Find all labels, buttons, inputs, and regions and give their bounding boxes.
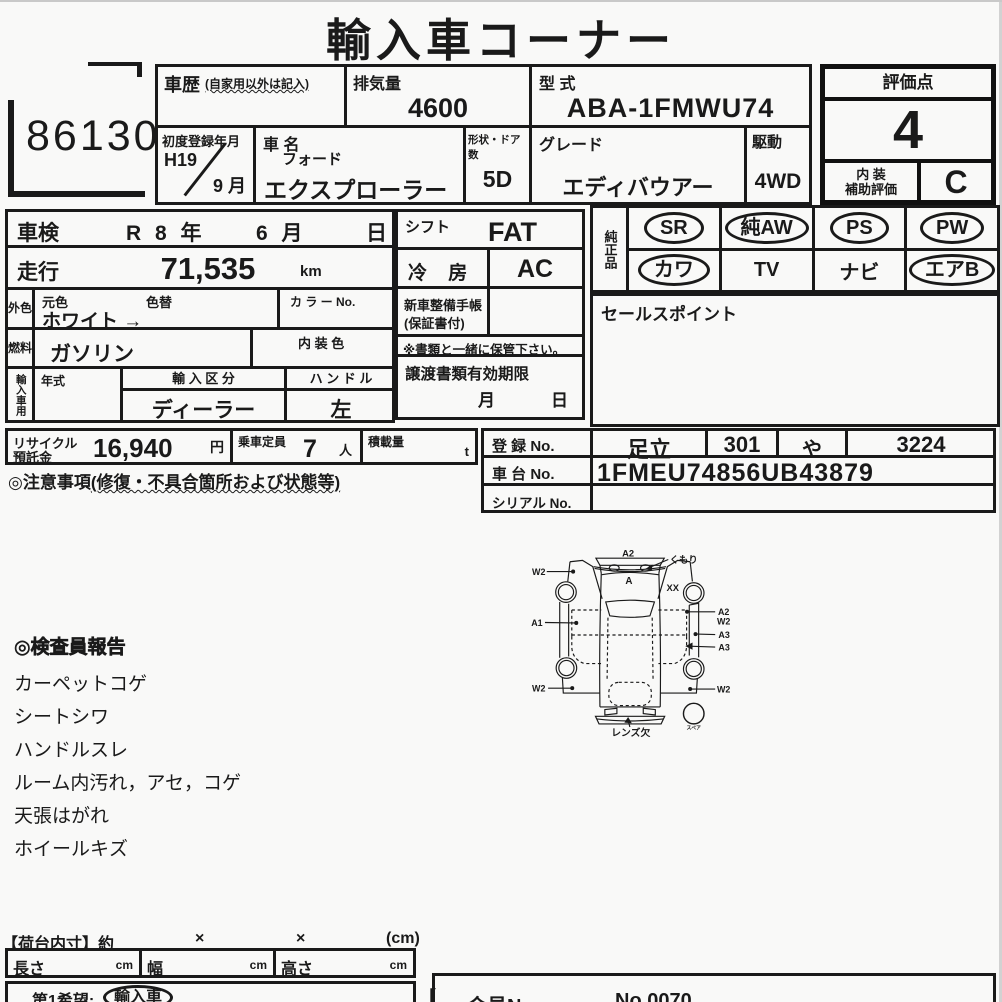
diagram-label-w2-right-top: W2 [717, 616, 730, 626]
doors-cell: 形状・ドア数 5D [463, 125, 532, 205]
service-book-label-1: 新車整備手帳 [404, 295, 482, 314]
history-cell: 車歴 (自家用以外は記入) [155, 64, 347, 128]
auction-sheet: 輸入車コーナー 86130 車歴 (自家用以外は記入) 排気量 4600 型 式… [0, 0, 1002, 1002]
height-cell: 高さ cm [273, 948, 416, 978]
shaken-month: 6 月 [256, 217, 307, 247]
doors-label: 形状・ドア数 [468, 132, 529, 162]
transfer-day: 日 [551, 386, 568, 411]
interior-rating-row: 内 装 補助評価 C [825, 159, 991, 201]
mileage-label: 走行 [17, 256, 59, 286]
equipment-group-label: 純正品 [593, 208, 626, 290]
first-choice-label: 第1希望: [32, 987, 94, 1002]
handle-value: 左 [287, 394, 395, 424]
capacity-value: 7 [303, 435, 317, 464]
bed-size-x2: × [296, 930, 305, 948]
caution-label: ◎注意事項 [8, 473, 91, 492]
ext-color-label: 外色 [8, 290, 35, 327]
import-row: 輸入車用 年式 輸 入 区 分 ディーラー ハ ン ド ル 左 [5, 366, 395, 423]
import-class-value: ディーラー [123, 394, 284, 424]
lot-corner-mark-top [88, 62, 142, 77]
drive-label: 駆動 [752, 131, 782, 152]
color-divider [277, 290, 280, 327]
chassis-label: 車 台 No. [492, 463, 555, 484]
fuel-row: 燃料 ガソリン 内 装 色 [5, 327, 395, 369]
history-note: (自家用以外は記入) [205, 75, 309, 92]
equipment-sr: SR [626, 208, 719, 248]
shaken-label: 車検 [17, 217, 59, 247]
model-code-value: ABA-1FMWU74 [532, 93, 809, 124]
length-cell: 長さ cm [5, 948, 142, 978]
serial-divider [590, 486, 593, 510]
inspector-heading: ◎検査員報告 [14, 632, 374, 659]
shift-label: シフト [405, 216, 450, 237]
diagram-label-a3-1: A3 [718, 630, 729, 640]
length-cm: cm [116, 958, 133, 972]
member-label: 会員No. [467, 990, 539, 1002]
car-maker: フォード [282, 148, 342, 169]
capacity-label: 乗車定員 [238, 433, 286, 450]
recycle-value: 16,940 [93, 433, 173, 464]
height-cm: cm [390, 958, 407, 972]
load-cell: 積載量 t [360, 428, 478, 465]
caution-heading: ◎注意事項(修復・不具合箇所および状態等) [8, 468, 340, 493]
import-class-label: 輸 入 区 分 [123, 369, 284, 391]
shift-cell: シフト FAT [395, 209, 585, 250]
equipment-kawa: カワ [626, 251, 719, 291]
diagram-label-w2-left-bottom: W2 [532, 684, 545, 694]
displacement-label: 排気量 [353, 70, 401, 94]
mileage-value: 71,535 [128, 251, 288, 287]
report-item-3: ハンドルスレ [14, 734, 374, 767]
diagram-label-a1: A1 [531, 618, 542, 628]
rating-box: 評価点 4 内 装 補助評価 C [820, 64, 996, 205]
bed-size-unit: (cm) [386, 930, 420, 948]
service-book-divider [487, 289, 490, 334]
first-choice-row: 第1希望: 輸入車 [5, 981, 416, 1002]
color-change-label: 色替 [146, 292, 172, 311]
lot-number: 86130 [26, 112, 161, 161]
member-box: 会員No. No.0070 [432, 973, 996, 1002]
ac-value: AC [490, 255, 580, 284]
diagram-label-xx: XX [666, 583, 679, 593]
diagram-label-a2-front: A2 [622, 548, 634, 558]
recycle-cell: リサイクル 預託金 16,940 円 [5, 428, 233, 465]
equipment-table: 純正品 SR 純AW PS PW カワ TV ナビ エアB [590, 205, 1000, 293]
first-reg-cell: 初度登録年月 H19 9 月 [155, 125, 256, 205]
diagram-label-w2-right-bottom: W2 [717, 685, 730, 695]
page-title: 輸入車コーナー [0, 4, 1002, 69]
serial-row: シリアル No. [481, 483, 996, 513]
equipment-row-1: SR 純AW PS PW [626, 208, 997, 251]
diagram-label-lens: レンズ欠 [611, 726, 650, 739]
ac-label: 冷 房 [408, 258, 475, 285]
shaken-year: R 8 年 [126, 217, 206, 247]
capacity-unit: 人 [339, 440, 352, 459]
capacity-cell: 乗車定員 7 人 [230, 428, 363, 465]
first-reg-month: 9 月 [213, 172, 246, 198]
shaken-row: 車検 R 8 年 6 月 日 [5, 209, 395, 248]
fuel-divider [250, 330, 253, 366]
import-label: 輸入車用 [8, 369, 35, 420]
reg-no-row: 登 録 No. 足立 301 や 3224 [481, 428, 996, 458]
report-item-1: カーペットコゲ [14, 668, 374, 701]
member-value: No.0070 [615, 990, 692, 1002]
diagram-label-kumori: くもり [670, 555, 698, 565]
interior-score: C [921, 163, 991, 201]
first-choice-value: 輸入車 [103, 985, 173, 1002]
drive-value: 4WD [747, 170, 809, 194]
report-item-2: シートシワ [14, 701, 374, 734]
color-row: 外色 元色 色替 ホワイト → カ ラ ー No. [5, 287, 395, 330]
caution-note: (修復・不具合箇所および状態等) [91, 473, 340, 492]
height-label: 高さ [281, 955, 313, 979]
car-name-value: エクスプローラー [264, 171, 447, 205]
displacement-cell: 排気量 4600 [344, 64, 532, 128]
int-color-label: 内 装 色 [298, 333, 344, 352]
mileage-row: 走行 71,535 km [5, 245, 395, 290]
ac-cell: 冷 房 AC [395, 247, 585, 289]
diagram-label-spare: スペア [687, 725, 701, 731]
load-unit: t [465, 444, 469, 459]
equipment-ps: PS [812, 208, 905, 248]
diagram-label-w2-left-top: W2 [532, 567, 545, 577]
equipment-pw: PW [904, 208, 997, 248]
load-label: 積載量 [368, 433, 404, 450]
grade-value: エディバウアー [532, 170, 744, 202]
transfer-month: 月 [478, 386, 495, 411]
transfer-cell: 譲渡書類有効期限 月 日 [395, 354, 585, 420]
shift-value: FAT [488, 217, 537, 248]
transfer-label: 譲渡書類有効期限 [405, 362, 529, 384]
service-book-cell: 新車整備手帳 (保証書付) [395, 286, 585, 337]
chassis-divider [590, 458, 593, 483]
diagram-label-a3-2: A3 [718, 643, 729, 653]
rating-score: 4 [825, 101, 991, 159]
model-code-label: 型 式 [539, 70, 575, 94]
sales-point-box: セールスポイント [590, 293, 1000, 427]
equipment-airbag: エアB [904, 251, 997, 291]
recycle-label-2: 預託金 [13, 447, 52, 466]
reg-no-label: 登 録 No. [492, 435, 555, 456]
grade-label: グレード [539, 131, 603, 155]
bed-size-x1: × [195, 930, 204, 948]
interior-label-2: 補助評価 [845, 182, 897, 197]
report-item-5: 天張はがれ [14, 800, 374, 833]
car-name-cell: 車 名 フォード エクスプローラー [253, 125, 466, 205]
damage-diagram: A2 くもり W2 A XX A1 A2 W2 A3 A3 W2 W2 レンズ欠… [490, 547, 1002, 987]
mileage-unit: km [300, 263, 322, 280]
service-book-label-2: (保証書付) [404, 313, 465, 332]
chassis-row: 車 台 No. 1FMEU74856UB43879 [481, 455, 996, 486]
serial-label: シリアル No. [492, 492, 571, 512]
width-label: 幅 [147, 955, 163, 979]
sales-point-label: セールスポイント [601, 300, 737, 325]
drive-cell: 駆動 4WD [744, 125, 812, 205]
inspector-report: ◎検査員報告 カーペットコゲ シートシワ ハンドルスレ ルーム内汚れ，アセ，コゲ… [14, 632, 374, 866]
year-type-label: 年式 [41, 372, 65, 389]
length-label: 長さ [13, 955, 45, 979]
fuel-value: ガソリン [50, 338, 134, 368]
fuel-label: 燃料 [8, 330, 35, 366]
first-reg-year: H19 [164, 150, 197, 171]
diagram-label-a2-right: A2 [718, 607, 729, 617]
shaken-day: 日 [366, 217, 387, 247]
equipment-navi: ナビ [812, 251, 905, 291]
history-label: 車歴 [164, 71, 200, 97]
grade-cell: グレード エディバウアー [529, 125, 747, 205]
rating-label: 評価点 [825, 69, 991, 101]
report-item-4: ルーム内汚れ，アセ，コゲ [14, 767, 374, 800]
equipment-aw: 純AW [719, 208, 812, 248]
width-cell: 幅 cm [139, 948, 276, 978]
equipment-tv: TV [719, 251, 812, 291]
report-item-6: ホイールキズ [14, 833, 374, 866]
first-reg-label: 初度登録年月 [162, 131, 240, 150]
recycle-unit: 円 [210, 437, 224, 457]
model-code-cell: 型 式 ABA-1FMWU74 [529, 64, 812, 128]
handle-label: ハ ン ド ル [287, 369, 395, 391]
color-no-label: カ ラ ー No. [290, 293, 355, 310]
equipment-row-2: カワ TV ナビ エアB [626, 251, 997, 291]
interior-label-1: 内 装 [856, 167, 886, 182]
doors-value: 5D [466, 166, 529, 193]
displacement-value: 4600 [347, 93, 529, 124]
diagram-label-a-hood: A [625, 576, 632, 587]
width-cm: cm [250, 958, 267, 972]
